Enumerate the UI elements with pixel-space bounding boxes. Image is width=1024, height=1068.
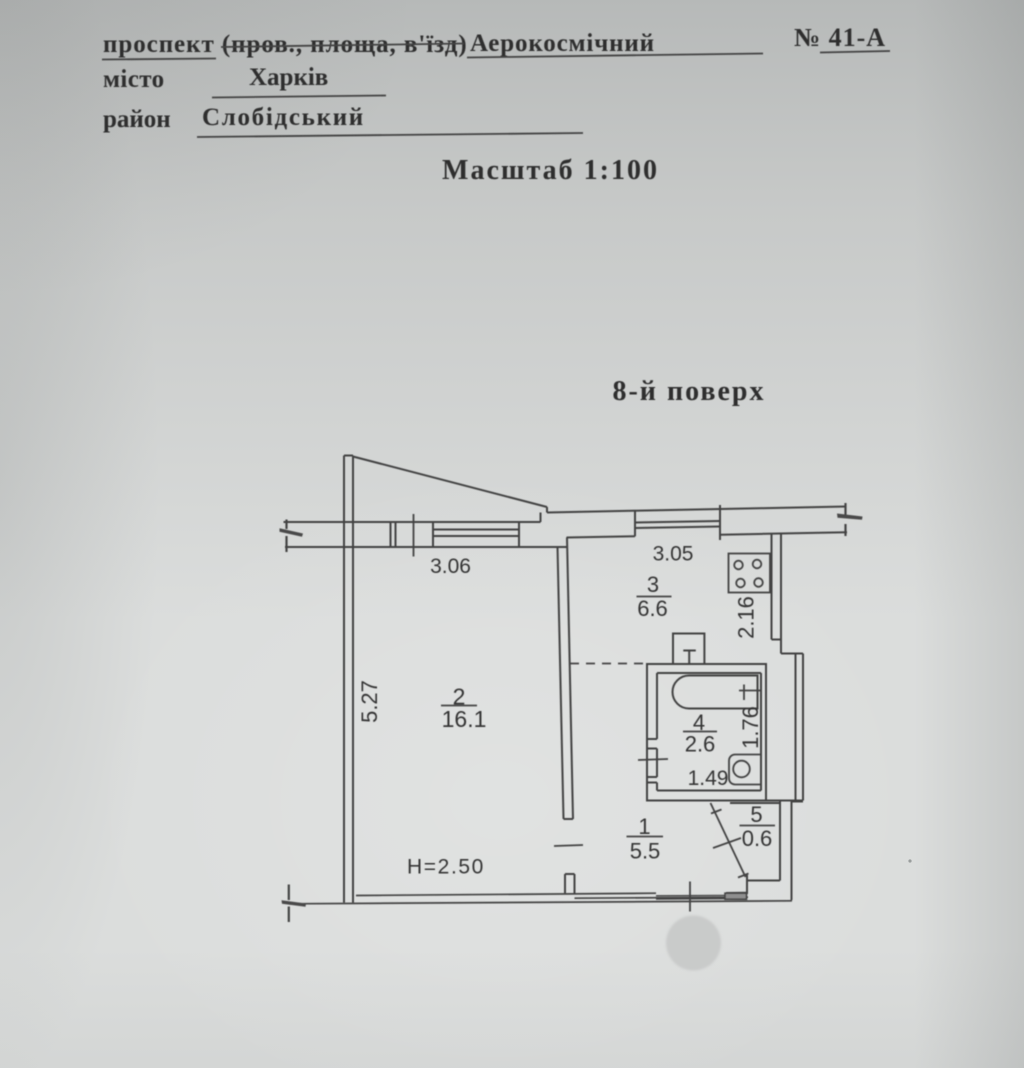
svg-text:Слобідський: Слобідський <box>202 104 365 131</box>
svg-text:Аерокосмічний: Аерокосмічний <box>470 30 655 57</box>
svg-text:1.76: 1.76 <box>738 706 763 749</box>
svg-text:2.6: 2.6 <box>685 732 716 757</box>
svg-text:5.27: 5.27 <box>357 680 382 723</box>
svg-text:1: 1 <box>638 814 650 839</box>
svg-text:2.16: 2.16 <box>734 596 759 639</box>
svg-text:5.5: 5.5 <box>630 839 661 864</box>
svg-text:5: 5 <box>750 802 762 827</box>
svg-text:район: район <box>103 106 171 133</box>
svg-text:3.05: 3.05 <box>653 543 694 566</box>
svg-text:Масштаб 1:100: Масштаб 1:100 <box>442 155 659 186</box>
svg-text:3: 3 <box>647 572 659 597</box>
svg-text:№ 41-А: № 41-А <box>794 23 886 52</box>
svg-text:1.49: 1.49 <box>688 767 729 790</box>
svg-text:Харків: Харків <box>249 64 328 91</box>
svg-text:H=2.50: H=2.50 <box>407 856 485 879</box>
svg-text:6.6: 6.6 <box>637 596 668 621</box>
svg-text:місто: місто <box>103 66 165 93</box>
svg-text:3.06: 3.06 <box>430 555 471 578</box>
svg-text:16.1: 16.1 <box>442 706 487 732</box>
svg-text:0.6: 0.6 <box>742 826 773 851</box>
svg-text:8-й поверх: 8-й поверх <box>612 376 765 407</box>
